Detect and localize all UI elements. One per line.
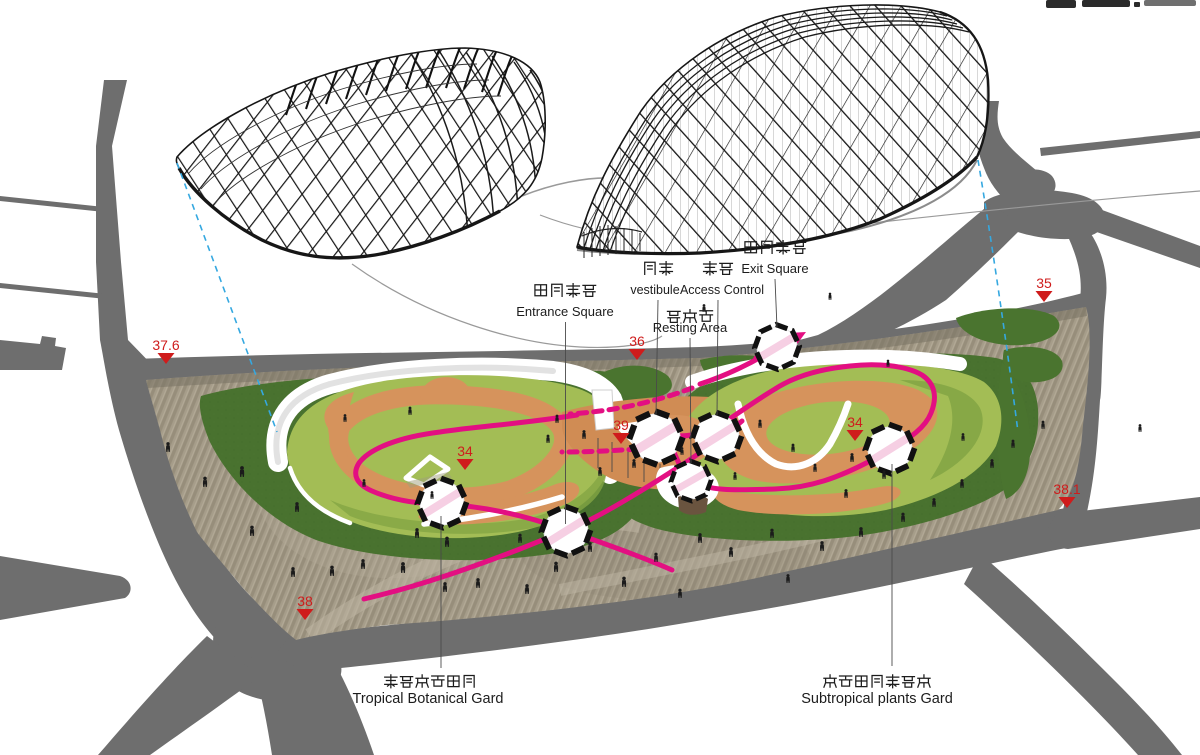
svg-text:34: 34 xyxy=(457,443,473,459)
svg-text:37.6: 37.6 xyxy=(152,337,179,353)
svg-text:Access Control: Access Control xyxy=(680,283,764,297)
svg-text:39: 39 xyxy=(613,417,629,433)
svg-text:Resting Area: Resting Area xyxy=(653,320,728,335)
svg-text:Entrance Square: Entrance Square xyxy=(516,304,614,319)
svg-text:38: 38 xyxy=(297,593,313,609)
svg-text:34: 34 xyxy=(847,414,863,430)
svg-text:36: 36 xyxy=(629,333,645,349)
svg-text:Subtropical plants Gard: Subtropical plants Gard xyxy=(801,691,953,707)
svg-text:38.1: 38.1 xyxy=(1053,481,1080,497)
svg-text:Exit Square: Exit Square xyxy=(741,261,808,276)
svg-text:35: 35 xyxy=(1036,275,1052,291)
svg-text:Tropical Botanical Gard: Tropical Botanical Gard xyxy=(353,691,504,707)
svg-text:vestibule: vestibule xyxy=(630,283,679,297)
